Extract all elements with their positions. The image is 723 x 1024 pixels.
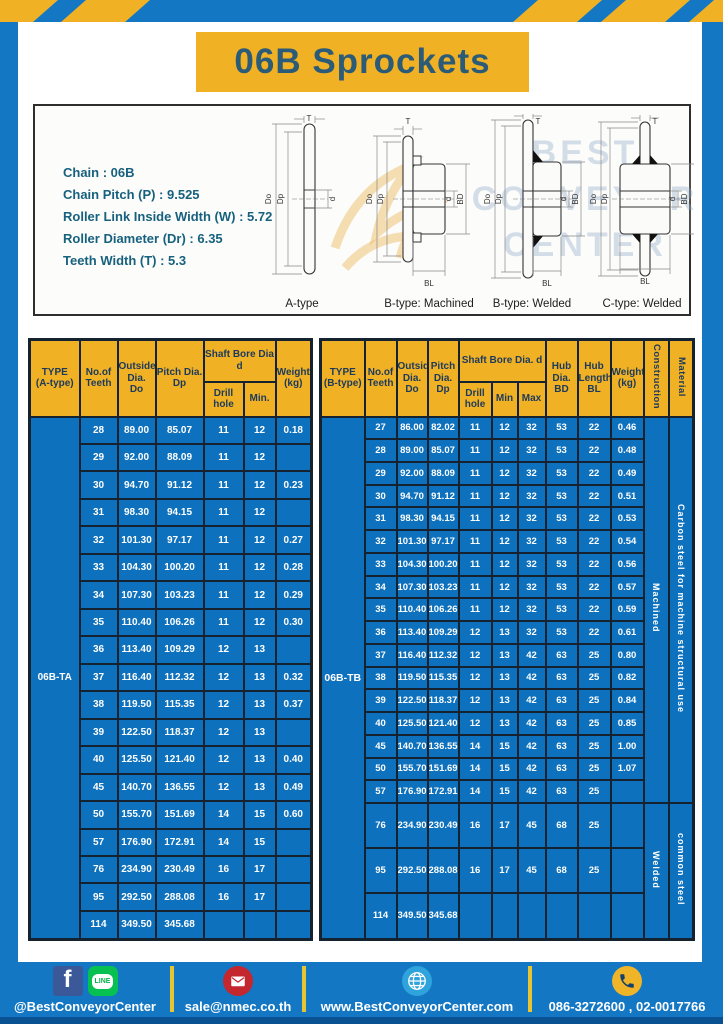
- table-cell: 11: [459, 553, 492, 576]
- table-cell: 0.59: [611, 598, 644, 621]
- footer-email-group: sale@nmec.co.th: [180, 965, 296, 1014]
- table-row: 3198.3094.1511123253220.53: [321, 507, 694, 530]
- footer-divider: [302, 966, 306, 1012]
- column-header: No.of Teeth: [80, 340, 118, 417]
- table-cell: [276, 719, 312, 746]
- table-row: 45140.70136.5514154263251.00: [321, 735, 694, 758]
- table-cell: 288.08: [428, 848, 459, 893]
- dim-label-dp: Dp: [600, 193, 609, 204]
- table-cell: 12: [204, 719, 244, 746]
- table-cell: [611, 848, 644, 893]
- table-cell: 42: [518, 780, 546, 803]
- table-cell: 31: [80, 499, 118, 526]
- table-cell: Machined: [644, 417, 669, 803]
- line-icon: LINE: [88, 966, 118, 996]
- table-cell: 172.91: [428, 780, 459, 803]
- table-cell: 17: [244, 856, 276, 883]
- chain-specs: Chain : 06B Chain Pitch (P) : 9.525 Roll…: [63, 164, 272, 274]
- table-row: 2992.0088.0911123253220.49: [321, 462, 694, 485]
- table-cell: [611, 803, 644, 848]
- table-cell: 25: [578, 712, 611, 735]
- table-cell: 32: [518, 439, 546, 462]
- table-cell: 13: [492, 689, 518, 712]
- table-cell: 140.70: [118, 774, 156, 801]
- table-row: 06B-TB2786.0082.0211123253220.46Machined…: [321, 417, 694, 440]
- table-cell: 100.20: [156, 554, 204, 581]
- diagram-a-type: T Do Dp d A-type: [242, 114, 362, 310]
- table-cell: 42: [518, 689, 546, 712]
- table-cell: 12: [459, 689, 492, 712]
- table-cell: 116.40: [397, 644, 428, 667]
- table-cell: 0.30: [276, 609, 312, 636]
- table-cell: 94.70: [397, 485, 428, 508]
- table-cell: 112.32: [156, 664, 204, 691]
- table-cell: 0.53: [611, 507, 644, 530]
- table-cell: 106.26: [156, 609, 204, 636]
- column-header: Pitch Dia. Dp: [156, 340, 204, 417]
- diagram-b-type-welded: T Do Dp d BD BL B-type: Welded: [477, 114, 587, 310]
- table-cell: 95: [80, 883, 118, 910]
- table-cell: 0.84: [611, 689, 644, 712]
- column-header: Drill hole: [459, 382, 492, 417]
- table-cell: 33: [80, 554, 118, 581]
- diagram-caption: C-type: Welded: [587, 298, 697, 310]
- diagram-caption: B-type: Welded: [477, 298, 587, 310]
- table-cell: 11: [459, 598, 492, 621]
- corner-stripes: [0, 0, 723, 22]
- table-row: 50155.70151.6914154263251.07: [321, 758, 694, 781]
- footer-website-group: www.BestConveyorCenter.com: [312, 965, 522, 1014]
- table-cell: 22: [578, 417, 611, 440]
- table-cell: 11: [459, 530, 492, 553]
- table-cell: 45: [80, 774, 118, 801]
- table-cell: 42: [518, 644, 546, 667]
- table-cell: 32: [518, 576, 546, 599]
- table-a-type: TYPE (A-type)No.of TeethOutside Dia. DoP…: [28, 338, 312, 941]
- column-header: Drill hole: [204, 382, 244, 417]
- table-cell: 11: [459, 485, 492, 508]
- table-cell: 13: [492, 667, 518, 690]
- column-header: No.of Teeth: [365, 340, 397, 417]
- table-cell: 0.85: [611, 712, 644, 735]
- table-cell: [244, 911, 276, 940]
- spec-line: Chain : 06B: [63, 164, 272, 181]
- table-cell: 234.90: [397, 803, 428, 848]
- table-cell: 63: [546, 667, 578, 690]
- table-cell: 101.30: [118, 526, 156, 553]
- table-cell: 53: [546, 485, 578, 508]
- table-cell: 100.20: [428, 553, 459, 576]
- table-cell: 12: [244, 554, 276, 581]
- globe-icon: [402, 966, 432, 996]
- table-cell: 12: [492, 530, 518, 553]
- table-cell: 104.30: [118, 554, 156, 581]
- column-header: Outside Dia. Do: [118, 340, 156, 417]
- table-cell: 53: [546, 439, 578, 462]
- table-cell: 140.70: [397, 735, 428, 758]
- table-cell: 11: [204, 499, 244, 526]
- table-cell: 25: [578, 758, 611, 781]
- column-header: Hub Length BL: [578, 340, 611, 417]
- dim-label-d: d: [328, 197, 337, 201]
- footer-divider: [170, 966, 174, 1012]
- table-cell: 42: [518, 712, 546, 735]
- table-cell: 101.30: [397, 530, 428, 553]
- table-cell: 57: [80, 829, 118, 856]
- spec-line: Roller Diameter (Dr) : 6.35: [63, 230, 272, 247]
- table-cell: 89.00: [397, 439, 428, 462]
- table-cell: 12: [204, 774, 244, 801]
- table-cell: 349.50: [118, 911, 156, 940]
- table-cell: 109.29: [428, 621, 459, 644]
- table-cell: 11: [459, 507, 492, 530]
- table-cell: 53: [546, 576, 578, 599]
- column-header: Weight (kg): [276, 340, 312, 417]
- table-cell: 12: [492, 553, 518, 576]
- table-cell: 68: [546, 848, 578, 893]
- table-cell: Welded: [644, 803, 669, 940]
- table-cell: 121.40: [428, 712, 459, 735]
- table-cell: 0.32: [276, 664, 312, 691]
- footer: LINE @BestConveyorCenter sale@nmec.co.th: [0, 962, 723, 1017]
- column-header: Min: [492, 382, 518, 417]
- table-cell: 136.55: [156, 774, 204, 801]
- table-cell: 53: [546, 507, 578, 530]
- table-cell: 38: [80, 691, 118, 718]
- table-cell: 14: [204, 801, 244, 828]
- table-cell: 32: [518, 553, 546, 576]
- table-cell: 0.29: [276, 581, 312, 608]
- table-cell: 30: [80, 471, 118, 498]
- table-cell: 12: [459, 621, 492, 644]
- table-cell: 45: [518, 803, 546, 848]
- table-cell: 155.70: [118, 801, 156, 828]
- dim-label-bd: BD: [680, 193, 689, 204]
- table-cell: 50: [365, 758, 397, 781]
- table-cell: 63: [546, 735, 578, 758]
- table-cell: 34: [80, 581, 118, 608]
- dim-label-d: d: [559, 197, 568, 201]
- table-cell: 68: [546, 803, 578, 848]
- table-cell: 17: [492, 803, 518, 848]
- sprocket-table-a: TYPE (A-type)No.of TeethOutside Dia. DoP…: [28, 338, 313, 941]
- table-row: 36113.40109.2912133253220.61: [321, 621, 694, 644]
- website-text: www.BestConveyorCenter.com: [321, 999, 513, 1014]
- table-cell: 53: [546, 462, 578, 485]
- dim-label-bd: BD: [456, 193, 465, 204]
- table-cell: 12: [492, 507, 518, 530]
- table-cell: 12: [244, 417, 276, 444]
- table-cell: [492, 893, 518, 940]
- table-cell: 172.91: [156, 829, 204, 856]
- table-cell: 116.40: [118, 664, 156, 691]
- table-cell: [518, 893, 546, 940]
- table-cell: 0.27: [276, 526, 312, 553]
- table-cell: [611, 893, 644, 940]
- table-cell: 57: [365, 780, 397, 803]
- table-cell: 76: [365, 803, 397, 848]
- table-cell: 32: [518, 530, 546, 553]
- table-row: 40125.50121.4012134263250.85: [321, 712, 694, 735]
- table-cell: 42: [518, 758, 546, 781]
- table-cell: 13: [244, 664, 276, 691]
- table-cell: 12: [244, 581, 276, 608]
- table-cell: 12: [492, 417, 518, 440]
- column-header: Shaft Bore Dia. d: [459, 340, 546, 382]
- table-cell: 125.50: [118, 746, 156, 773]
- table-cell: 122.50: [118, 719, 156, 746]
- dim-label-t: T: [653, 117, 658, 126]
- dim-label-bl: BL: [640, 277, 650, 286]
- column-header: TYPE (B-type): [321, 340, 365, 417]
- table-cell: 63: [546, 758, 578, 781]
- column-header: Max: [518, 382, 546, 417]
- page-title-text: 06B Sprockets: [234, 42, 490, 82]
- table-cell: 63: [546, 644, 578, 667]
- table-cell: [204, 911, 244, 940]
- table-cell: 15: [492, 735, 518, 758]
- table-cell: 53: [546, 621, 578, 644]
- table-cell: 25: [578, 667, 611, 690]
- table-cell: [459, 893, 492, 940]
- table-cell: 97.17: [428, 530, 459, 553]
- table-cell: 36: [365, 621, 397, 644]
- table-cell: 0.54: [611, 530, 644, 553]
- header-row: TYPE (B-type)No.of TeethOutside Dia. DoP…: [321, 340, 694, 382]
- table-cell: 32: [518, 507, 546, 530]
- table-cell: 25: [578, 848, 611, 893]
- table-cell: 22: [578, 576, 611, 599]
- table-cell: 0.37: [276, 691, 312, 718]
- table-cell: 121.40: [156, 746, 204, 773]
- table-cell: 45: [518, 848, 546, 893]
- table-cell: 85.07: [156, 417, 204, 444]
- table-cell: 113.40: [397, 621, 428, 644]
- table-cell: 14: [459, 735, 492, 758]
- table-cell: 12: [492, 576, 518, 599]
- table-cell: 12: [204, 746, 244, 773]
- table-cell: 0.49: [276, 774, 312, 801]
- column-header: Outside Dia. Do: [397, 340, 428, 417]
- table-cell: 176.90: [118, 829, 156, 856]
- table-cell: 13: [244, 774, 276, 801]
- table-cell: 0.60: [276, 801, 312, 828]
- table-cell: 25: [578, 803, 611, 848]
- table-cell: 12: [459, 712, 492, 735]
- table-cell: 39: [80, 719, 118, 746]
- table-cell: 16: [459, 803, 492, 848]
- table-row: 57176.90172.911415426325: [321, 780, 694, 803]
- table-cell: 50: [80, 801, 118, 828]
- table-cell: 11: [204, 554, 244, 581]
- table-cell: [276, 911, 312, 940]
- table-cell: 25: [578, 644, 611, 667]
- table-row: 33104.30100.2011123253220.56: [321, 553, 694, 576]
- table-cell: 113.40: [118, 636, 156, 663]
- table-row: 38119.50115.3512134263250.82: [321, 667, 694, 690]
- table-cell: 53: [546, 598, 578, 621]
- table-cell: 11: [459, 462, 492, 485]
- column-header: Material: [669, 340, 694, 417]
- table-cell: 27: [365, 417, 397, 440]
- table-cell: 82.02: [428, 417, 459, 440]
- dim-label-t: T: [406, 117, 411, 126]
- table-cell: 30: [365, 485, 397, 508]
- table-row: 2889.0085.0711123253220.48: [321, 439, 694, 462]
- table-cell: 63: [546, 780, 578, 803]
- table-cell: [611, 780, 644, 803]
- line-icon-label: LINE: [92, 974, 114, 989]
- table-cell: 12: [492, 439, 518, 462]
- table-cell: 104.30: [397, 553, 428, 576]
- table-cell: 32: [518, 621, 546, 644]
- table-cell: 63: [546, 689, 578, 712]
- table-cell: 114: [80, 911, 118, 940]
- table-cell: 45: [365, 735, 397, 758]
- footer-social-group: LINE @BestConveyorCenter: [6, 965, 164, 1014]
- table-cell: 22: [578, 462, 611, 485]
- spec-panel: BEST CONVEYOR CENTER Chain : 06B Chain P…: [33, 104, 691, 316]
- table-b-type: TYPE (B-type)No.of TeethOutside Dia. DoP…: [319, 338, 693, 941]
- table-cell: [276, 883, 312, 910]
- table-cell: 13: [492, 644, 518, 667]
- table-cell: 292.50: [118, 883, 156, 910]
- table-cell: 40: [365, 712, 397, 735]
- table-cell: 12: [492, 462, 518, 485]
- table-cell: 13: [492, 712, 518, 735]
- table-cell: 14: [204, 829, 244, 856]
- table-cell: 12: [459, 667, 492, 690]
- table-cell: 118.37: [156, 719, 204, 746]
- table-cell: 22: [578, 530, 611, 553]
- table-cell: 22: [578, 553, 611, 576]
- table-cell: 22: [578, 621, 611, 644]
- table-cell: 151.69: [428, 758, 459, 781]
- table-cell: [276, 499, 312, 526]
- table-cell: 103.23: [156, 581, 204, 608]
- table-cell: 42: [518, 735, 546, 758]
- table-cell: 1.00: [611, 735, 644, 758]
- table-cell: 32: [518, 485, 546, 508]
- table-cell: 11: [459, 439, 492, 462]
- table-cell: 112.32: [428, 644, 459, 667]
- table-cell: 106.26: [428, 598, 459, 621]
- diagram-caption: A-type: [242, 298, 362, 310]
- phone-icon: [612, 966, 642, 996]
- table-cell: [276, 444, 312, 471]
- column-header: Pitch Dia. Dp: [428, 340, 459, 417]
- table-cell: 0.46: [611, 417, 644, 440]
- table-cell: 11: [204, 444, 244, 471]
- table-cell: 32: [518, 417, 546, 440]
- dim-label-do: Do: [365, 193, 374, 204]
- column-header: Min.: [244, 382, 276, 417]
- table-cell: 13: [244, 719, 276, 746]
- table-cell: 31: [365, 507, 397, 530]
- header-row: TYPE (A-type)No.of TeethOutside Dia. DoP…: [30, 340, 312, 382]
- table-cell: 35: [365, 598, 397, 621]
- column-header: Hub Dia. BD: [546, 340, 578, 417]
- dim-label-bd: BD: [571, 193, 580, 204]
- table-cell: [276, 856, 312, 883]
- footer-divider: [528, 966, 532, 1012]
- table-cell: 107.30: [118, 581, 156, 608]
- table-cell: 91.12: [156, 471, 204, 498]
- table-cell: 22: [578, 598, 611, 621]
- table-cell: 53: [546, 530, 578, 553]
- table-cell: 17: [492, 848, 518, 893]
- table-cell: 32: [518, 462, 546, 485]
- table-cell: 13: [244, 746, 276, 773]
- table-cell: 29: [365, 462, 397, 485]
- table-cell: 37: [80, 664, 118, 691]
- table-cell: 12: [492, 598, 518, 621]
- table-cell: 40: [80, 746, 118, 773]
- table-cell: 15: [492, 780, 518, 803]
- spec-line: Teeth Width (T) : 5.3: [63, 252, 272, 269]
- catalog-page: 06B Sprockets BEST CONVEYOR CENTER Chain…: [0, 0, 723, 1024]
- table-cell: 118.37: [428, 689, 459, 712]
- table-row: 95292.50288.081617456825: [321, 848, 694, 893]
- dim-label-d: d: [444, 197, 453, 201]
- dim-label-bl: BL: [542, 279, 552, 288]
- dim-label-do: Do: [589, 193, 598, 204]
- table-cell: 16: [204, 883, 244, 910]
- table-cell: 12: [244, 609, 276, 636]
- table-row: 35110.40106.2611123253220.59: [321, 598, 694, 621]
- table-cell: 12: [244, 471, 276, 498]
- table-cell: 92.00: [118, 444, 156, 471]
- table-cell: 16: [459, 848, 492, 893]
- table-cell: 11: [204, 526, 244, 553]
- table-cell: 0.23: [276, 471, 312, 498]
- table-cell: 36: [80, 636, 118, 663]
- facebook-icon: [53, 966, 83, 996]
- table-cell: 17: [244, 883, 276, 910]
- email-icon: [223, 966, 253, 996]
- table-cell: 119.50: [397, 667, 428, 690]
- table-cell: 97.17: [156, 526, 204, 553]
- table-row: 32101.3097.1711123253220.54: [321, 530, 694, 553]
- table-cell: 12: [204, 691, 244, 718]
- table-cell: [276, 636, 312, 663]
- table-cell: 0.61: [611, 621, 644, 644]
- table-cell: [546, 893, 578, 940]
- dim-label-dp: Dp: [494, 193, 503, 204]
- table-cell: 122.50: [397, 689, 428, 712]
- table-row: 39122.50118.3712134263250.84: [321, 689, 694, 712]
- table-cell: 136.55: [428, 735, 459, 758]
- table-cell: Carbon steel for machine structural use: [669, 417, 694, 803]
- table-cell: 15: [492, 758, 518, 781]
- table-row: 114349.50345.68: [321, 893, 694, 940]
- table-cell: 32: [518, 598, 546, 621]
- table-cell: 32: [80, 526, 118, 553]
- table-cell: 42: [518, 667, 546, 690]
- table-cell: 0.49: [611, 462, 644, 485]
- table-cell: 12: [244, 526, 276, 553]
- table-cell: 92.00: [397, 462, 428, 485]
- table-cell: 125.50: [397, 712, 428, 735]
- table-cell: 12: [244, 499, 276, 526]
- spec-line: Chain Pitch (P) : 9.525: [63, 186, 272, 203]
- table-cell: 103.23: [428, 576, 459, 599]
- column-header: Shaft Bore Dia d: [204, 340, 276, 382]
- table-cell: 15: [244, 801, 276, 828]
- table-cell: 94.15: [156, 499, 204, 526]
- table-cell: 39: [365, 689, 397, 712]
- table-cell: 13: [244, 691, 276, 718]
